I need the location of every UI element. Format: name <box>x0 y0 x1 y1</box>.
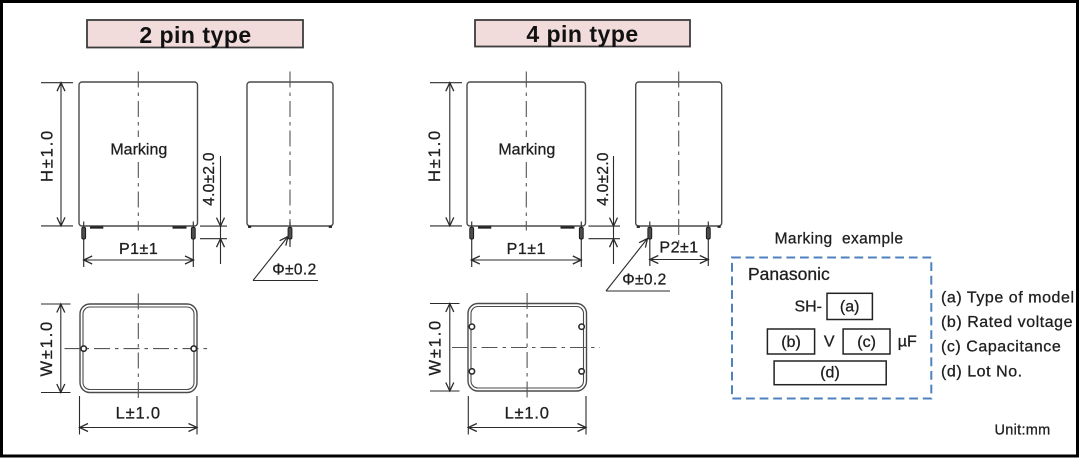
svg-text:(d) Lot No.: (d) Lot No. <box>941 363 1023 380</box>
svg-text:2 pin type: 2 pin type <box>139 22 251 48</box>
svg-text:P1±1: P1±1 <box>507 241 546 258</box>
svg-text:Φ±0.2: Φ±0.2 <box>622 271 666 288</box>
svg-text:W±1.0: W±1.0 <box>38 320 56 377</box>
svg-text:V: V <box>824 333 835 350</box>
svg-text:(c): (c) <box>857 334 876 351</box>
svg-text:(b): (b) <box>781 334 801 351</box>
svg-text:P2±1: P2±1 <box>659 240 698 257</box>
svg-text:Panasonic: Panasonic <box>748 264 830 284</box>
svg-text:(a) Type of model: (a) Type of model <box>941 289 1075 306</box>
svg-text:H±1.0: H±1.0 <box>426 129 444 182</box>
svg-text:Marking: Marking <box>498 142 555 159</box>
svg-text:(b) Rated voltage: (b) Rated voltage <box>941 314 1073 331</box>
svg-text:(d): (d) <box>820 365 840 382</box>
svg-text:L±1.0: L±1.0 <box>116 405 161 423</box>
svg-text:Φ±0.2: Φ±0.2 <box>272 261 316 278</box>
svg-text:4 pin type: 4 pin type <box>526 21 638 47</box>
svg-text:L±1.0: L±1.0 <box>505 405 550 423</box>
svg-text:(c) Capacitance: (c) Capacitance <box>941 338 1061 355</box>
svg-text:W±1.0: W±1.0 <box>427 319 445 376</box>
svg-text:P1±1: P1±1 <box>119 241 158 258</box>
svg-text:H±1.0: H±1.0 <box>39 129 57 182</box>
svg-text:4.0±2.0: 4.0±2.0 <box>201 152 218 206</box>
svg-text:µF: µF <box>898 333 917 350</box>
svg-text:(a): (a) <box>840 299 860 316</box>
svg-text:Marking example: Marking example <box>775 231 904 248</box>
svg-text:Unit:mm: Unit:mm <box>994 422 1050 438</box>
svg-text:Marking: Marking <box>110 142 167 159</box>
svg-text:4.0±2.0: 4.0±2.0 <box>595 152 612 206</box>
svg-text:SH-: SH- <box>794 298 822 315</box>
